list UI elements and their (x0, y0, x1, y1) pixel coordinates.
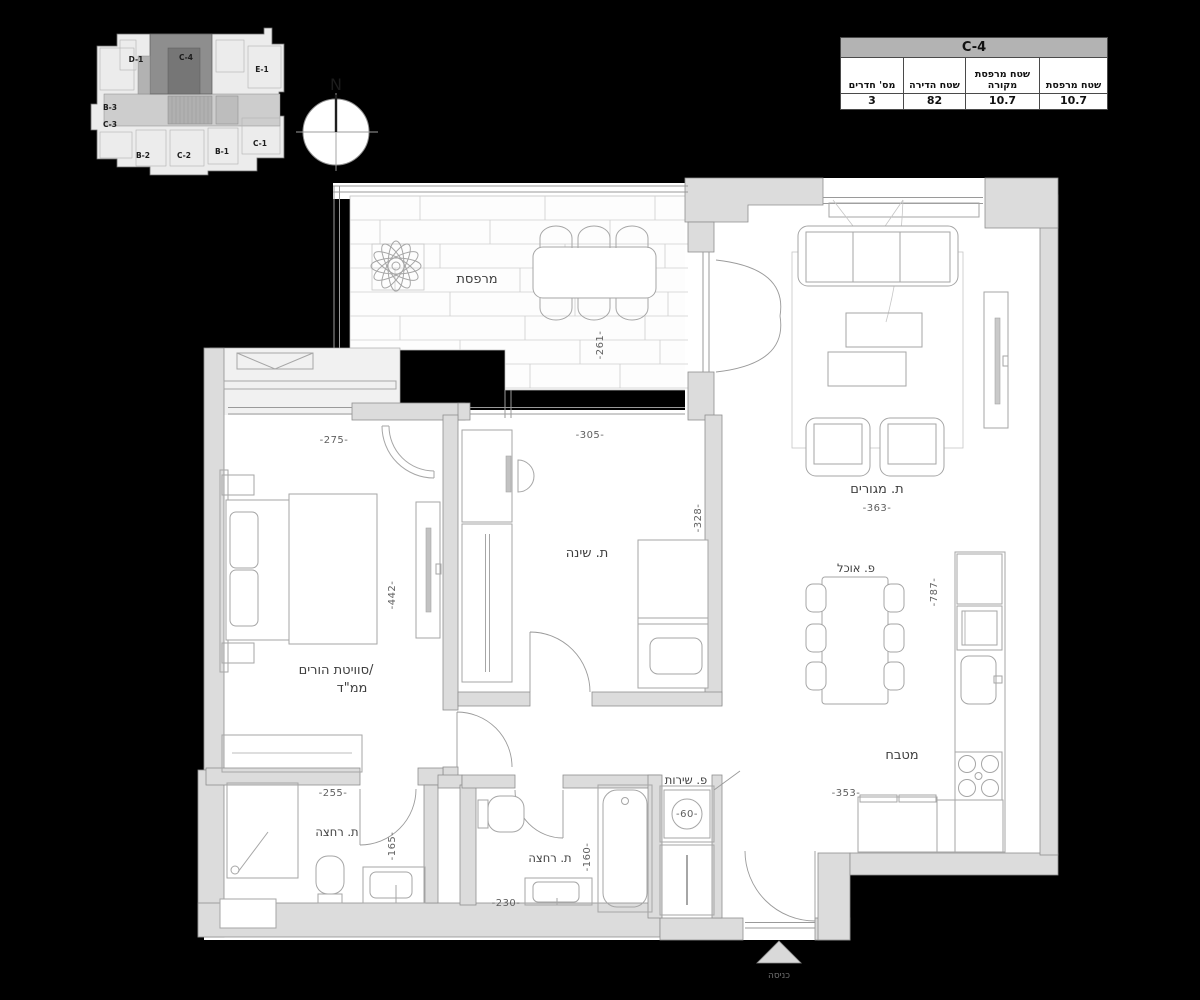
master-label-line1: סוויטת הורים/ (299, 663, 374, 678)
col-label-covered-balcony: שטח מרפסת מקורה (966, 58, 1040, 94)
keyplan-unit-label: E-1 (255, 65, 268, 74)
bedroom-width-dim: -305- (576, 430, 605, 441)
col-label-rooms: מס' חדרים (841, 58, 904, 94)
entrance-arrow (757, 941, 801, 963)
dining-furniture (806, 577, 904, 704)
north-compass: N (296, 75, 378, 171)
north-label: N (330, 75, 342, 94)
col-value-balcony-area: 10.7 (1040, 94, 1108, 110)
bath2-height-dim: -160- (582, 843, 593, 872)
niche (220, 899, 276, 928)
floor-plan-page: D-1 C-4 E-1 B-3 C-3 B-2 C-2 B-1 C-1 N (0, 0, 1200, 1000)
living-dim: -363- (863, 503, 892, 514)
balcony-table (533, 247, 656, 298)
dining-label: פ. אוכל (837, 561, 875, 575)
washer-dim: -60- (676, 809, 698, 820)
unit-title: C-4 (841, 38, 1108, 58)
bath1-width-dim: -255- (319, 788, 348, 799)
keyplan-unit-label: B-1 (215, 147, 229, 156)
col-value-rooms: 3 (841, 94, 904, 110)
keyplan-unit-label: C-1 (253, 139, 267, 148)
building-key-plan: D-1 C-4 E-1 B-3 C-3 B-2 C-2 B-1 C-1 (91, 28, 284, 175)
bedroom-height-dim: -328- (693, 504, 704, 533)
bedroom-label: ת. שינה (566, 546, 609, 561)
entrance-label: כניסה (768, 971, 790, 981)
keyplan-unit-label: C-2 (177, 151, 191, 160)
keyplan-unit-label: C-3 (103, 120, 117, 129)
balcony-dim: -261- (595, 331, 606, 360)
kitchen-width-dim: -353- (832, 788, 861, 799)
service-label: פ. שירות (665, 773, 707, 787)
dining-table (822, 577, 888, 704)
col-label-balcony-area: שטח מרפסת (1040, 58, 1108, 94)
col-value-apartment-area: 82 (904, 94, 966, 110)
col-label-apartment-area: שטח הדירה (904, 58, 966, 94)
master-height-dim: -442- (387, 581, 398, 610)
kitchen-label: מטבח (885, 748, 918, 763)
balcony-label: מרפסת (456, 272, 497, 287)
bath1-height-dim: -165- (387, 832, 398, 861)
keyplan-unit-label: B-2 (136, 151, 150, 160)
kitchen-height-dim: -787- (929, 578, 940, 607)
sofa (798, 226, 958, 286)
plan-canvas: D-1 C-4 E-1 B-3 C-3 B-2 C-2 B-1 C-1 N (0, 0, 1200, 1000)
col-value-covered-balcony: 10.7 (966, 94, 1040, 110)
bath1-label: ת. רחצה (315, 825, 358, 839)
keyplan-unit-label: B-3 (103, 103, 117, 112)
master-width-dim: -275- (320, 435, 349, 446)
keyplan-unit-label-highlighted: C-4 (179, 53, 193, 62)
living-label: ת. מגורים (850, 482, 903, 497)
master-label-line2: ממ"ד (337, 681, 368, 696)
bath2-label: ת. רחצה (528, 851, 571, 865)
single-bed (638, 540, 708, 688)
keyplan-unit-label: D-1 (129, 55, 144, 64)
unit-info-table: C-4 מס' חדרים שטח הדירה שטח מרפסת מקורה … (840, 37, 1108, 110)
entrance-marker: כניסה (757, 941, 801, 981)
bath2-width-dim: -230- (492, 898, 521, 909)
